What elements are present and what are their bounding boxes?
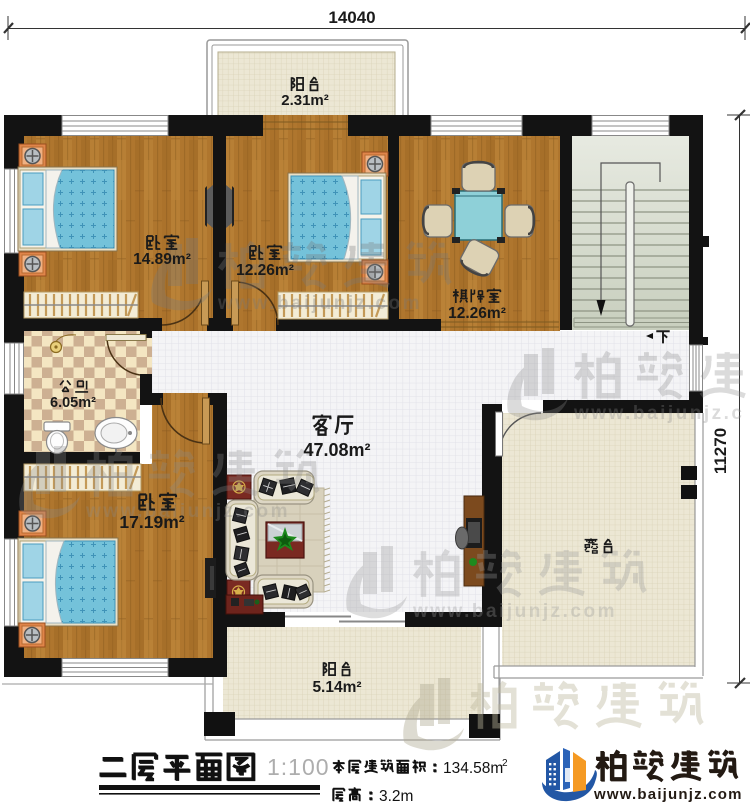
svg-text:www.baijunjz.com: www.baijunjz.com (593, 786, 743, 803)
svg-text:47.08m²: 47.08m² (303, 440, 370, 460)
svg-text:www.baijunjz.com: www.baijunjz.com (85, 501, 290, 522)
svg-text:2: 2 (502, 758, 508, 769)
svg-text:2.31m²: 2.31m² (281, 92, 329, 109)
svg-text:www.baijunjz.com: www.baijunjz.com (412, 601, 617, 622)
svg-text:3.2m: 3.2m (379, 788, 413, 805)
svg-text:14040: 14040 (328, 8, 375, 27)
svg-text:5.14m²: 5.14m² (312, 679, 361, 696)
svg-text:www.baijunjz.com: www.baijunjz.com (217, 293, 422, 314)
svg-text:17.19m²: 17.19m² (119, 512, 184, 532)
svg-text:6.05m²: 6.05m² (50, 395, 96, 411)
svg-text:134.58m: 134.58m (443, 760, 503, 777)
svg-text:12.26m²: 12.26m² (236, 262, 294, 279)
svg-text:12.26m²: 12.26m² (448, 305, 506, 322)
svg-text:11270: 11270 (711, 428, 730, 474)
svg-text:14.89m²: 14.89m² (133, 251, 191, 268)
svg-text:www.baijunjz.c: www.baijunjz.c (573, 403, 744, 424)
svg-text:1:100: 1:100 (267, 754, 330, 780)
